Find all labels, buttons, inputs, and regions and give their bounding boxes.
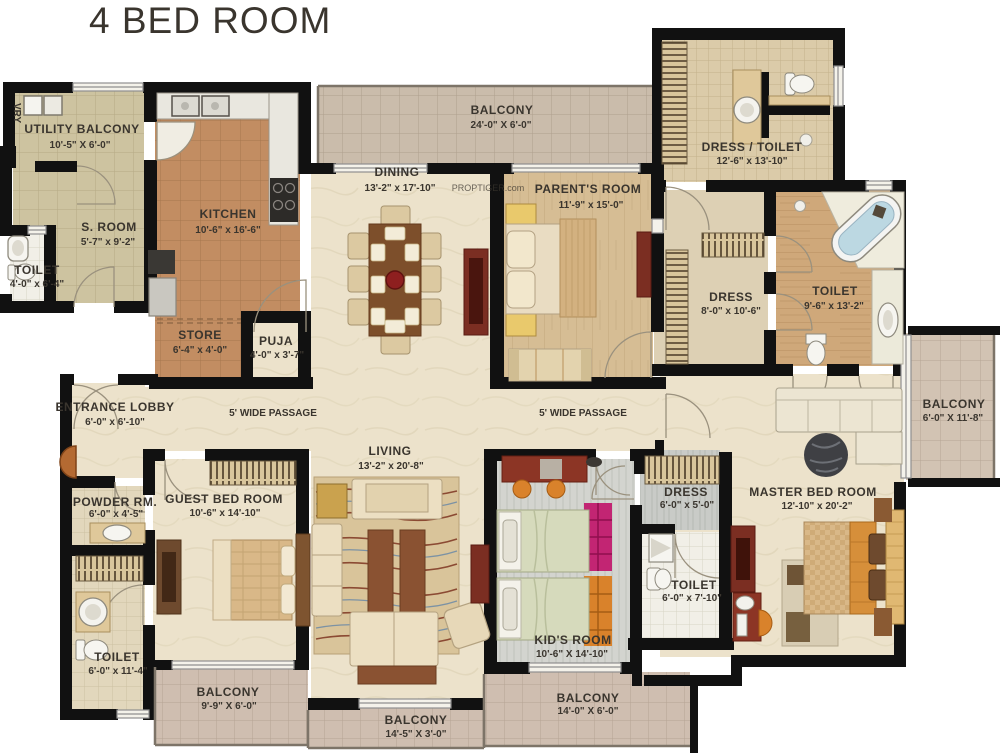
svg-text:6'-0" x 6'-10": 6'-0" x 6'-10" (85, 417, 145, 428)
svg-text:DRESS: DRESS (709, 290, 753, 304)
svg-text:13'-2" x 17'-10": 13'-2" x 17'-10" (365, 183, 436, 194)
svg-text:6'-0" X 11'-8": 6'-0" X 11'-8" (923, 413, 984, 424)
svg-text:LIVING: LIVING (368, 444, 411, 458)
svg-text:PROPTIGER.com: PROPTIGER.com (452, 183, 525, 193)
svg-text:TOILET: TOILET (812, 284, 858, 298)
svg-text:10'-6" X 14'-10": 10'-6" X 14'-10" (536, 649, 608, 660)
svg-text:TOILET: TOILET (671, 578, 717, 592)
svg-text:6'-0" x 7'-10": 6'-0" x 7'-10" (662, 593, 722, 604)
svg-text:6'-0" x 5'-0": 6'-0" x 5'-0" (660, 500, 715, 511)
svg-text:13'-2" x 20'-8": 13'-2" x 20'-8" (358, 461, 424, 472)
svg-text:14'-0" X 6'-0": 14'-0" X 6'-0" (558, 706, 619, 717)
svg-text:BALCONY: BALCONY (385, 713, 448, 727)
svg-text:4 BED ROOM: 4 BED ROOM (89, 0, 331, 41)
svg-text:5' WIDE PASSAGE: 5' WIDE PASSAGE (229, 408, 317, 419)
svg-text:GUEST BED ROOM: GUEST BED ROOM (165, 492, 283, 506)
svg-text:ENTRANCE LOBBY: ENTRANCE LOBBY (55, 400, 174, 414)
svg-text:VRY: VRY (11, 103, 22, 124)
svg-text:6'-0" x 11'-4": 6'-0" x 11'-4" (88, 666, 148, 677)
svg-text:BALCONY: BALCONY (923, 397, 986, 411)
svg-text:TOILET: TOILET (14, 263, 60, 277)
svg-text:POWDER RM.: POWDER RM. (73, 495, 157, 509)
svg-text:BALCONY: BALCONY (197, 685, 260, 699)
svg-text:TOILET: TOILET (94, 650, 140, 664)
svg-text:12'-10" x 20'-2": 12'-10" x 20'-2" (782, 501, 853, 512)
svg-text:KID'S ROOM: KID'S ROOM (534, 633, 611, 647)
svg-text:UTILITY BALCONY: UTILITY BALCONY (24, 122, 139, 136)
svg-text:BALCONY: BALCONY (557, 691, 620, 705)
svg-text:6'-0" x 4'-5": 6'-0" x 4'-5" (89, 509, 144, 520)
svg-text:MASTER BED ROOM: MASTER BED ROOM (749, 485, 877, 499)
svg-text:STORE: STORE (178, 328, 222, 342)
svg-text:11'-9" x 15'-0": 11'-9" x 15'-0" (559, 200, 624, 211)
svg-text:10'-6" x 16'-6": 10'-6" x 16'-6" (195, 225, 261, 236)
svg-text:8'-0" x 10'-6": 8'-0" x 10'-6" (701, 306, 761, 317)
svg-text:KITCHEN: KITCHEN (200, 207, 257, 221)
svg-text:DRESS: DRESS (664, 485, 708, 499)
svg-text:PARENT'S ROOM: PARENT'S ROOM (535, 182, 641, 196)
svg-text:24'-0" X 6'-0": 24'-0" X 6'-0" (471, 120, 532, 131)
svg-text:10'-6" x 14'-10": 10'-6" x 14'-10" (190, 508, 261, 519)
svg-text:4'-0" x 3'-7": 4'-0" x 3'-7" (250, 350, 305, 361)
svg-text:9'-6" x 13'-2": 9'-6" x 13'-2" (804, 301, 864, 312)
svg-text:14'-5" X 3'-0": 14'-5" X 3'-0" (386, 729, 447, 740)
svg-text:12'-6" x 13'-10": 12'-6" x 13'-10" (717, 156, 788, 167)
svg-text:DRESS / TOILET: DRESS / TOILET (702, 140, 803, 154)
svg-text:10'-5" X 6'-0": 10'-5" X 6'-0" (50, 140, 111, 151)
svg-text:6'-4" x 4'-0": 6'-4" x 4'-0" (173, 345, 228, 356)
svg-text:BALCONY: BALCONY (471, 103, 534, 117)
svg-text:5' WIDE PASSAGE: 5' WIDE PASSAGE (539, 408, 627, 419)
svg-text:4'-0" x 6'-4": 4'-0" x 6'-4" (10, 279, 65, 290)
svg-text:PUJA: PUJA (259, 334, 293, 348)
svg-text:DINING: DINING (375, 165, 420, 179)
svg-text:9'-9" X 6'-0": 9'-9" X 6'-0" (201, 701, 257, 712)
svg-text:5'-7" x 9'-2": 5'-7" x 9'-2" (81, 237, 136, 248)
svg-text:S. ROOM: S. ROOM (81, 220, 137, 234)
